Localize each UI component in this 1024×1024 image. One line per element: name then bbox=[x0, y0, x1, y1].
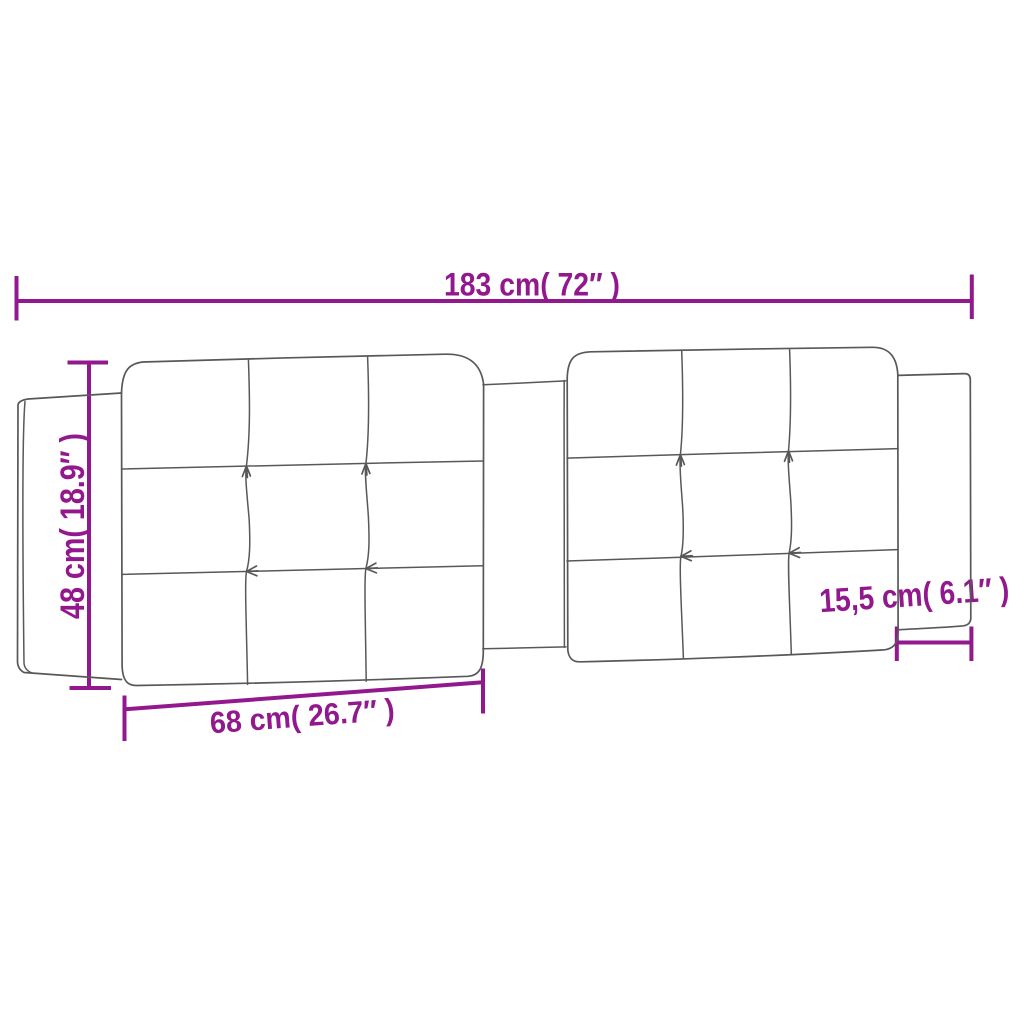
svg-text:48 cm( 18.9″ ): 48 cm( 18.9″ ) bbox=[54, 433, 92, 619]
svg-text:183 cm( 72″ ): 183 cm( 72″ ) bbox=[444, 267, 620, 303]
